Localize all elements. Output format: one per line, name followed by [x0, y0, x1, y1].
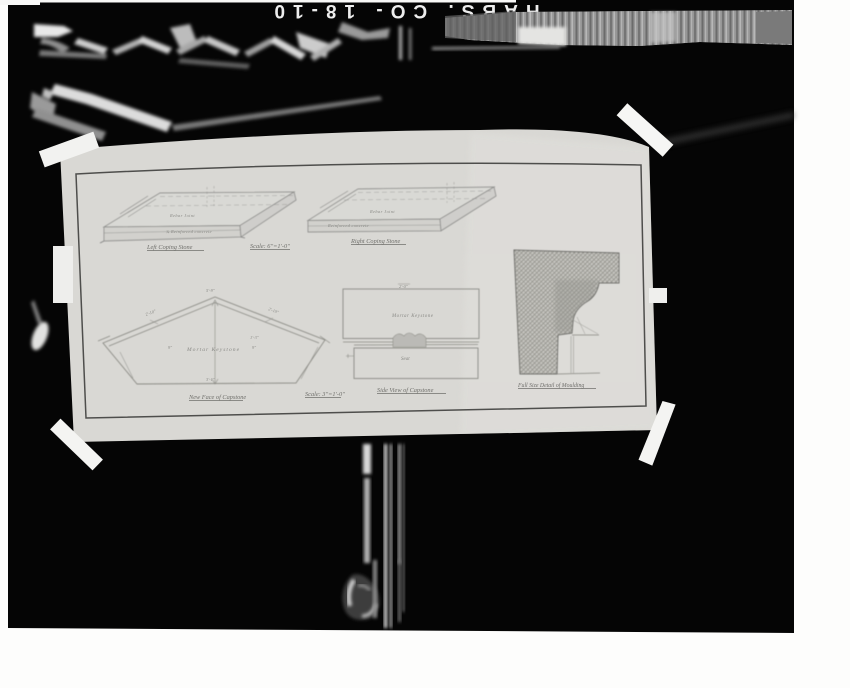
svg-text:9": 9" [252, 345, 256, 350]
svg-text:9": 9" [168, 345, 172, 350]
svg-text:Side View of Capstone: Side View of Capstone [377, 387, 434, 394]
svg-text:New Face of Capstone: New Face of Capstone [188, 394, 246, 401]
svg-text:Mortar Keystone: Mortar Keystone [186, 347, 240, 353]
svg-text:Rebar Joint: Rebar Joint [169, 213, 195, 218]
svg-text:Rebar Joint: Rebar Joint [369, 209, 395, 214]
svg-text:Scale: 3"=1'-0": Scale: 3"=1'-0" [305, 391, 345, 398]
svg-text:5'-9": 5'-9" [206, 288, 215, 293]
svg-text:Reinforced concrete: Reinforced concrete [327, 223, 369, 228]
svg-text:Mortar Keystone: Mortar Keystone [391, 314, 434, 319]
svg-text:2'-0": 2'-0" [399, 284, 408, 289]
svg-text:Left Coping Stone: Left Coping Stone [146, 244, 193, 251]
svg-text:1'-3": 1'-3" [250, 335, 259, 340]
svg-text:3'-1": 3'-1" [206, 377, 215, 382]
svg-text:Full Size Detail of Moulding: Full Size Detail of Moulding [517, 382, 584, 389]
svg-text:Scale: 6"=1'-0": Scale: 6"=1'-0" [250, 243, 290, 250]
svg-text:Right Coping Stone: Right Coping Stone [350, 238, 401, 245]
svg-text:Seat: Seat [401, 357, 410, 362]
svg-text:¾ Reinforced concrete: ¾ Reinforced concrete [166, 229, 212, 234]
